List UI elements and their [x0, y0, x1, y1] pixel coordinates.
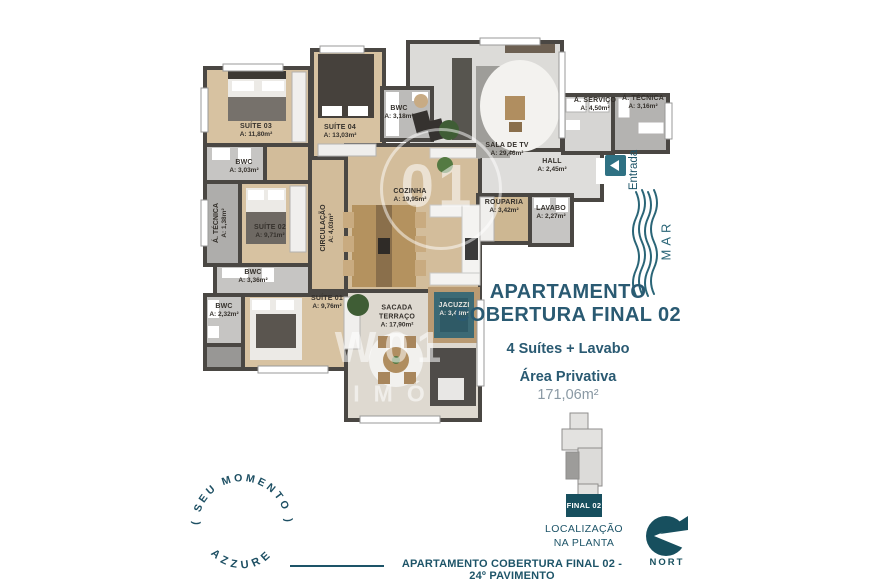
room-label-sala: SALA DE TV A: 29,46m² — [485, 141, 528, 159]
room-label-tecnica-right: Á. TÉCNICA A: 3,16m² — [622, 94, 664, 112]
apartment-title-line2: COBERTURA FINAL 02 — [442, 304, 694, 327]
building-locator — [0, 0, 870, 580]
footer-rule — [290, 565, 384, 567]
apartment-subtitle: 4 Suítes + Lavabo — [442, 341, 694, 357]
room-label-hall: HALL A: 2,45m² — [537, 157, 566, 175]
room-label-bwc2: BWC A: 3,18m² — [384, 104, 413, 122]
room-label-cozinha: COZINHA A: 19,95m² — [393, 187, 426, 205]
room-label-bwc3: BWC A: 3,36m² — [238, 268, 267, 286]
apartment-title-line1: APARTAMENTO — [442, 281, 694, 304]
room-label-lavabo: LAVABO A: 2,27m² — [536, 204, 566, 222]
room-label-servico: Á. SERVIÇO A: 4,50m² — [574, 96, 616, 114]
room-label-suite04: SUÍTE 04 A: 13,03m² — [324, 123, 357, 141]
footer-caption: APARTAMENTO COBERTURA FINAL 02 - 24º PAV… — [392, 558, 632, 580]
private-area-value: 171,06m² — [442, 387, 694, 403]
room-label-tecnica-left: Á. TÉCNICA A: 1,38m² — [212, 203, 230, 243]
info-block: APARTAMENTO COBERTURA FINAL 02 4 Suítes … — [442, 281, 694, 403]
badge-bottom-text: AZZURE — [208, 547, 275, 572]
momento-azzure-badge: ( SEU MOMENTO ) AZZURE — [182, 468, 302, 580]
room-label-suite01: SUÍTE 01 A: 9,76m² — [311, 294, 343, 312]
entrada-label: Entrada — [628, 150, 640, 190]
room-label-circulacao: CIRCULAÇÃO A: 4,03m² — [319, 204, 337, 251]
room-label-bwc1: BWC A: 3,03m² — [229, 158, 258, 176]
locator-caption-line1: LOCALIZAÇÃO — [524, 523, 644, 537]
final-02-tag: FINAL 02 — [566, 494, 602, 517]
room-label-suite02: SUÍTE 02 A: 9,71m² — [254, 223, 286, 241]
page: 01 W01 IMÓ SUÍTE 03 A: 11,80m² BWC A: 3,… — [0, 0, 870, 580]
room-label-sacada: SACADA TERRAÇO A: 17,90m² — [369, 304, 425, 331]
room-label-suite03: SUÍTE 03 A: 11,80m² — [240, 122, 273, 140]
room-label-rouparia: ROUPARIA A: 3,42m² — [485, 198, 523, 216]
mar-label: MAR — [659, 220, 674, 261]
room-label-bwc4: BWC A: 2,32m² — [209, 302, 238, 320]
badge-top-text: ( SEU MOMENTO ) — [189, 472, 294, 525]
locator-caption-line2: NA PLANTA — [524, 537, 644, 551]
svg-text:AZZURE: AZZURE — [208, 547, 275, 572]
svg-text:( SEU MOMENTO ): ( SEU MOMENTO ) — [189, 472, 294, 525]
nort-logo-icon — [644, 514, 690, 558]
brand-name: NORT — [640, 557, 694, 568]
private-area-label: Área Privativa — [442, 369, 694, 385]
